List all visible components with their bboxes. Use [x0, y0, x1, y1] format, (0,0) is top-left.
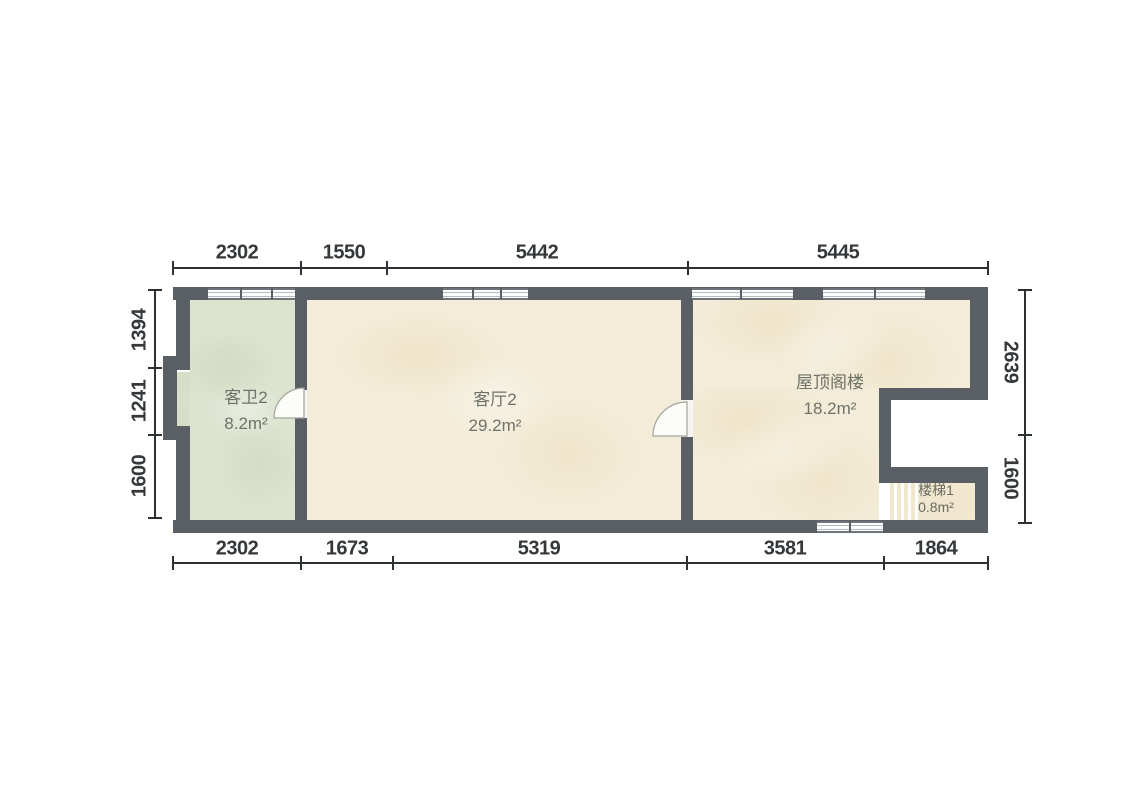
- attic-window-left: [692, 288, 793, 300]
- wall-right-upper: [970, 287, 988, 400]
- dim-top-4: 5445: [817, 242, 860, 265]
- dim-left-1: 1394: [129, 309, 152, 352]
- bathroom-floor-niche: [177, 372, 190, 426]
- dim-tick: [148, 289, 162, 291]
- dim-line-left: [154, 290, 156, 519]
- room-label-bathroom: 客卫2 8.2m²: [224, 385, 267, 437]
- dim-right-1: 2639: [999, 341, 1022, 384]
- dim-tick: [148, 367, 162, 369]
- dim-top-1: 2302: [216, 242, 259, 265]
- dim-top-2: 1550: [323, 242, 366, 265]
- dim-bottom-4: 3581: [764, 538, 807, 561]
- wall-left-lower: [176, 426, 190, 533]
- dim-line-right: [1024, 289, 1026, 524]
- stair-treads: [887, 483, 920, 521]
- wall-living-attic-lower: [681, 437, 693, 533]
- dim-tick: [1018, 289, 1032, 291]
- window-mullion: [472, 287, 474, 299]
- dim-tick: [172, 556, 174, 570]
- dim-tick: [300, 556, 302, 570]
- dim-bottom-1: 2302: [216, 538, 259, 561]
- dim-tick: [987, 261, 989, 275]
- wall-bathroom-living-upper: [295, 287, 307, 390]
- window-mullion: [271, 287, 273, 299]
- bathroom-door-swing: [271, 386, 305, 420]
- bathroom-window: [208, 288, 295, 300]
- dim-tick: [1018, 522, 1032, 524]
- room-name: 屋顶阁楼: [796, 370, 864, 396]
- room-name: 客厅2: [469, 387, 522, 413]
- room-area: 8.2m²: [224, 411, 267, 437]
- dim-bottom-2: 1673: [326, 538, 369, 561]
- dim-left-2: 1241: [129, 380, 152, 423]
- dim-tick: [686, 556, 688, 570]
- dim-bottom-5: 1864: [915, 538, 958, 561]
- dim-bottom-3: 5319: [518, 538, 561, 561]
- dim-line-top: [173, 267, 988, 269]
- wall-notch-top: [879, 388, 988, 400]
- attic-window-right: [823, 288, 925, 300]
- room-area: 0.8m²: [918, 499, 954, 516]
- living-room-window: [443, 288, 528, 300]
- dim-tick: [148, 517, 162, 519]
- room-label-living: 客厅2 29.2m²: [469, 387, 522, 439]
- dim-tick: [172, 261, 174, 275]
- wall-bathroom-living-lower: [295, 418, 307, 533]
- dim-tick: [687, 261, 689, 275]
- room-name: 楼梯1: [918, 482, 954, 499]
- window-mullion: [500, 287, 502, 299]
- attic-door-swing: [650, 400, 689, 439]
- room-label-attic: 屋顶阁楼 18.2m²: [796, 370, 864, 422]
- wall-stair-top: [879, 467, 988, 483]
- dim-right-2: 1600: [999, 457, 1022, 500]
- wall-stair-right: [975, 467, 988, 533]
- wall-living-attic-upper: [681, 287, 693, 400]
- room-area: 18.2m²: [796, 396, 864, 422]
- dim-tick: [1018, 434, 1032, 436]
- attic-bottom-window: [817, 521, 883, 533]
- floor-plan: 客卫2 8.2m² 客厅2 29.2m² 屋顶阁楼 18.2m² 楼梯1 0.8…: [0, 0, 1125, 790]
- window-mullion: [240, 287, 242, 299]
- dim-tick: [987, 556, 989, 570]
- dim-left-3: 1600: [129, 455, 152, 498]
- dim-tick: [392, 556, 394, 570]
- dim-tick: [386, 261, 388, 275]
- window-mullion: [874, 287, 876, 299]
- dim-top-3: 5442: [516, 242, 559, 265]
- window-mullion: [849, 520, 851, 532]
- dim-line-bottom: [173, 562, 988, 564]
- room-label-stairs: 楼梯1 0.8m²: [918, 482, 954, 516]
- room-area: 29.2m²: [469, 413, 522, 439]
- dim-tick: [883, 556, 885, 570]
- dim-tick: [148, 434, 162, 436]
- dim-tick: [300, 261, 302, 275]
- window-mullion: [740, 287, 742, 299]
- room-name: 客卫2: [224, 385, 267, 411]
